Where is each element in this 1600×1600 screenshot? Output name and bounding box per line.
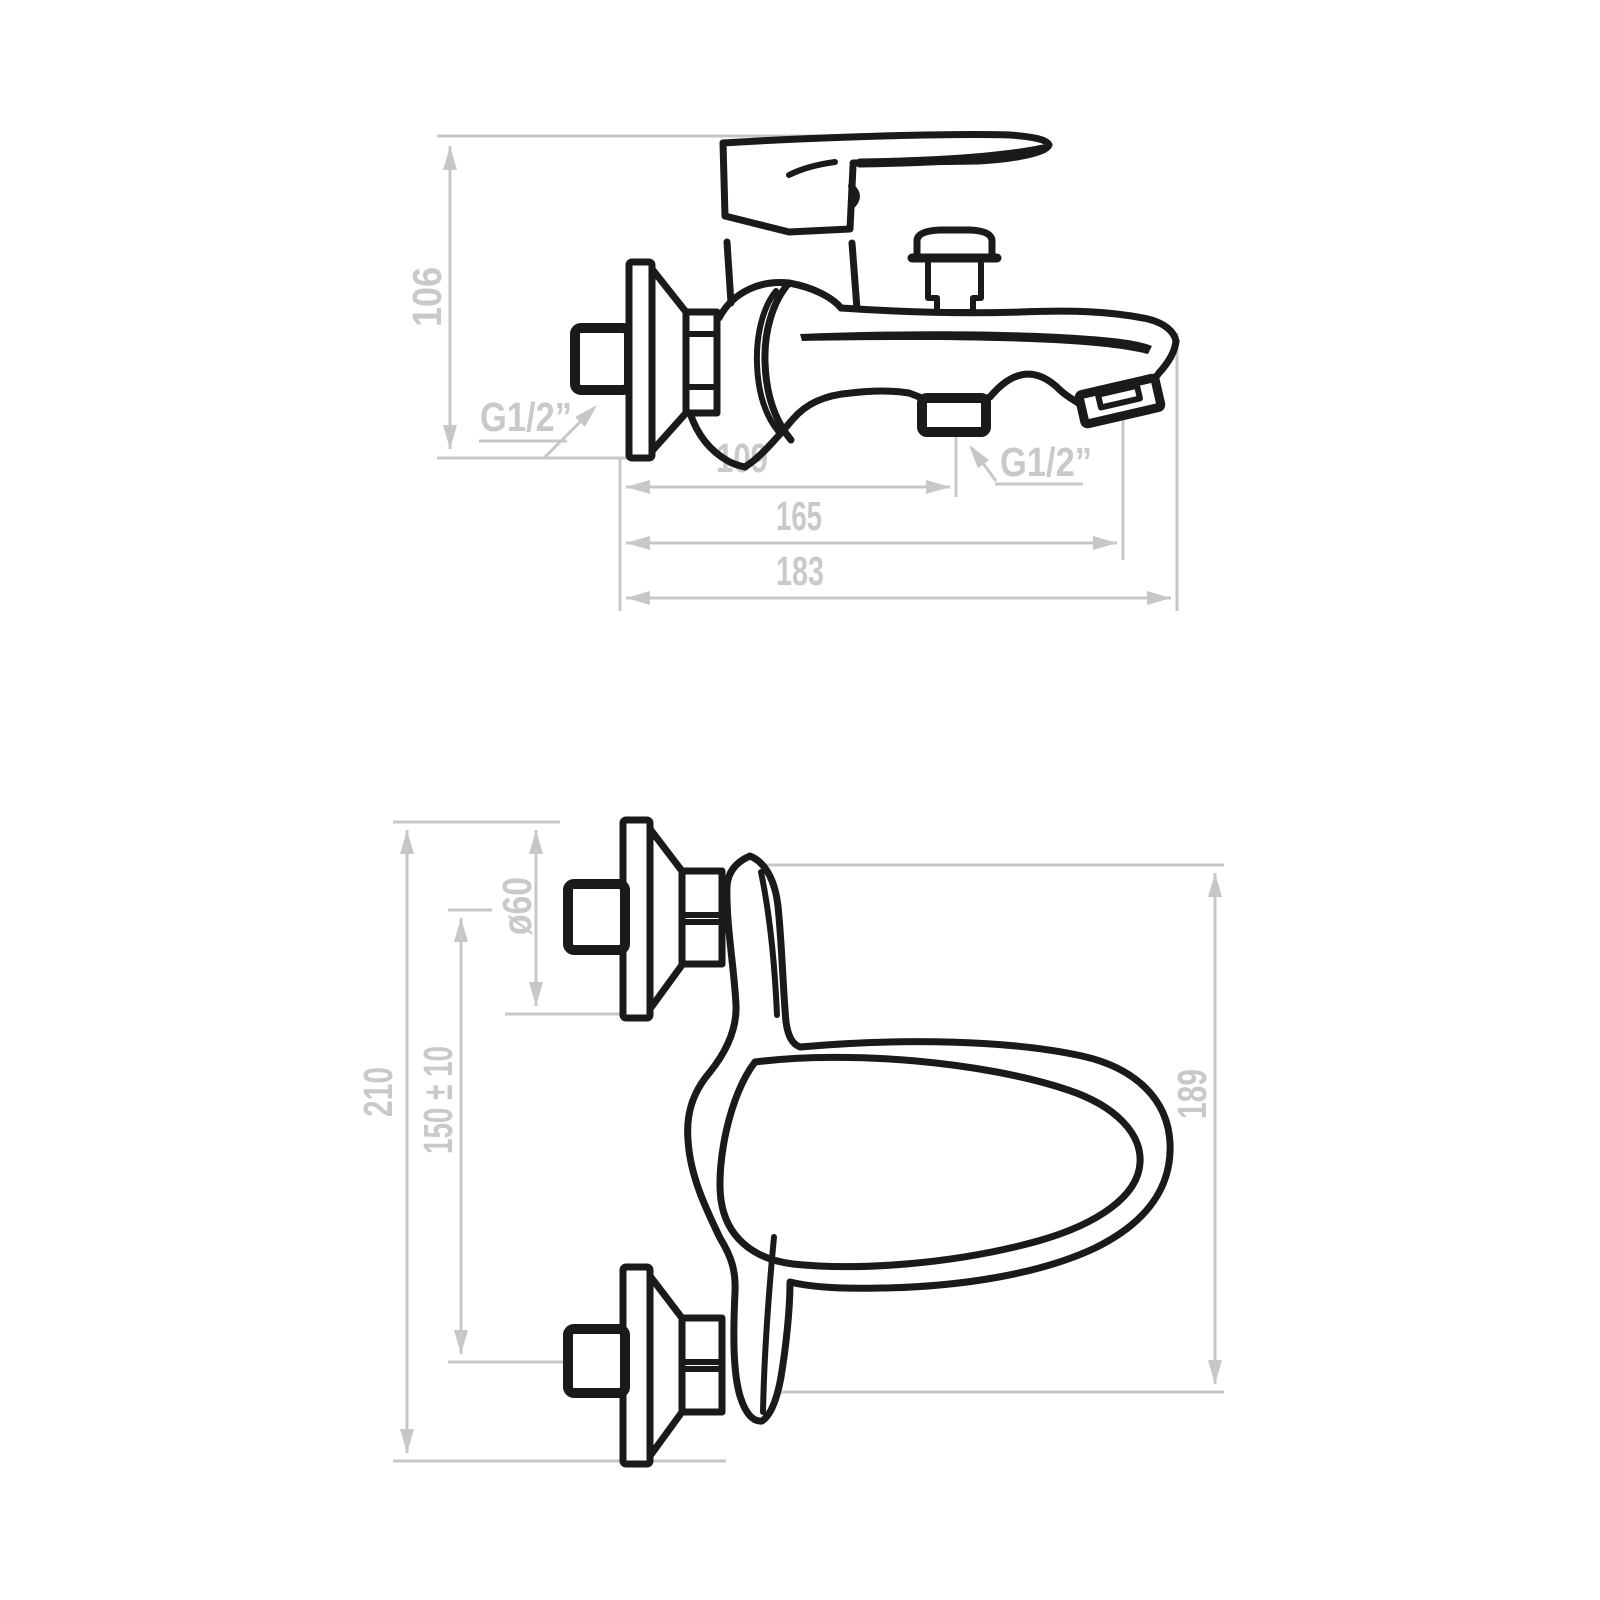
inlet-fitting-square: [568, 1329, 625, 1393]
inlet-fitting-square: [575, 328, 629, 390]
flange-cone-edge: [650, 1276, 682, 1318]
top-wall-connector: [568, 820, 722, 1018]
dim-height-210: 210: [355, 822, 726, 1461]
handle-underside-accent: [860, 149, 1043, 163]
faucet-body-silhouette: [688, 856, 1170, 1421]
front-view-faucet: [568, 820, 1170, 1464]
dim-label-106: 106: [404, 267, 450, 327]
inlet-fitting-square: [568, 884, 625, 950]
flange-cone-edge: [650, 829, 682, 871]
dim-label-o60: ø60: [494, 877, 540, 935]
spout-bottom-cutout: [987, 374, 1085, 407]
cartridge-cover: [723, 143, 853, 232]
bottom-wall-connector: [568, 1267, 722, 1464]
knob-stem-edge: [928, 263, 981, 312]
flange-cone-edge: [652, 269, 686, 312]
diverter-knob: [912, 230, 997, 312]
cartridge-neck-edge: [852, 243, 857, 309]
diverter-outlet-square: [922, 398, 986, 432]
side-view-faucet: [575, 134, 1176, 467]
cartridge-neck-edge: [727, 242, 731, 303]
flange-cone-edge: [652, 413, 686, 451]
callout-inlet-thread: G1/2”: [479, 394, 602, 457]
dim-label-189: 189: [1169, 1069, 1215, 1119]
connector-hex-nut: [686, 312, 717, 413]
aerator-outlet: [1079, 378, 1162, 425]
spout-accent-swash: [800, 331, 1152, 354]
side-view-dimensions: 106 G1/2” 109 G1/2”: [404, 136, 1177, 611]
flange-cone-edge: [650, 965, 682, 1009]
thread-label: G1/2”: [480, 394, 572, 440]
drawing-canvas: 106 G1/2” 109 G1/2”: [0, 0, 1600, 1600]
knob-cap: [917, 230, 992, 257]
dim-label-165: 165: [776, 493, 822, 539]
handle-crease-line: [789, 162, 835, 175]
callout-diverter-thread: G1/2”: [963, 439, 1092, 485]
wall-flange-plate: [629, 262, 652, 458]
dim-label-210: 210: [355, 1067, 401, 1117]
flange-cone-edge: [650, 1412, 682, 1456]
dim-spacing-150: 150 ± 10: [415, 910, 568, 1362]
dim-label-183: 183: [776, 548, 824, 594]
thread-label: G1/2”: [1000, 439, 1092, 485]
front-view: 210 150 ± 10 ø60 189: [355, 820, 1224, 1464]
dim-label-150: 150 ± 10: [415, 1046, 461, 1154]
faucet-technical-drawing: 106 G1/2” 109 G1/2”: [0, 0, 1600, 1600]
side-view: 106 G1/2” 109 G1/2”: [404, 134, 1177, 611]
